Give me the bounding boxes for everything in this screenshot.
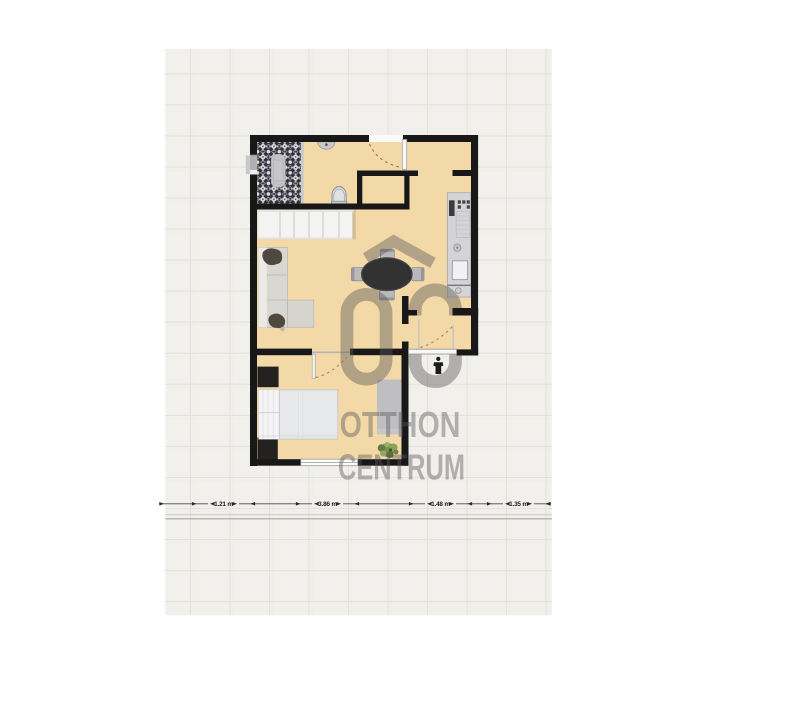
- svg-text:1.48 m: 1.48 m: [431, 501, 450, 508]
- svg-text:CENTRUM: CENTRUM: [338, 446, 465, 487]
- svg-text:1.35 m: 1.35 m: [509, 501, 528, 508]
- svg-text:OTTHON: OTTHON: [340, 404, 461, 445]
- svg-text:1.21 m: 1.21 m: [214, 501, 233, 508]
- svg-text:3.86 m: 3.86 m: [318, 501, 337, 508]
